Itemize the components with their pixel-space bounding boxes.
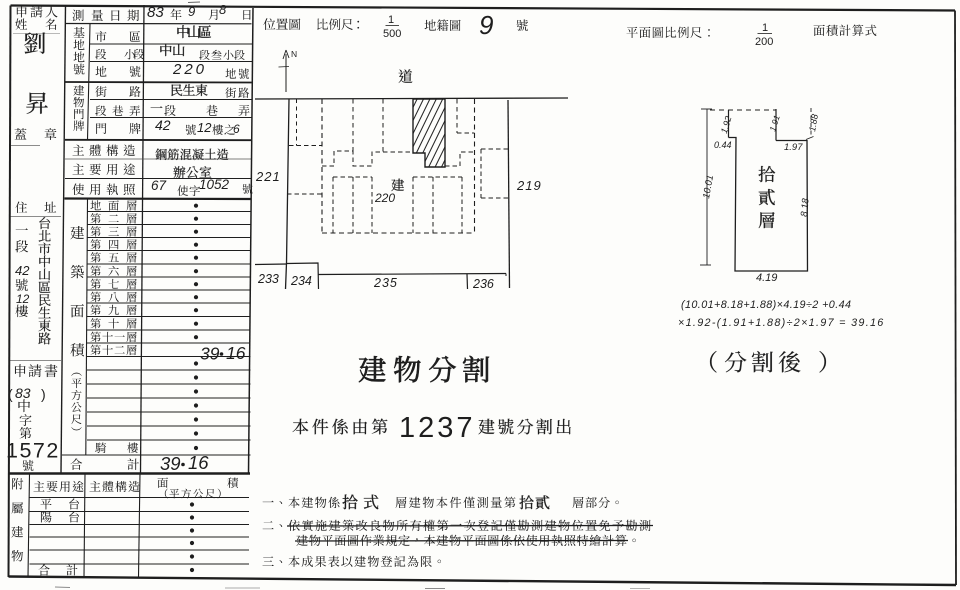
svg-text:10.01: 10.01 [701,174,716,199]
svg-text:8.18: 8.18 [799,197,812,217]
svg-text:42: 42 [155,117,171,133]
svg-text:9: 9 [479,10,493,40]
svg-text:6: 6 [233,122,240,136]
svg-text:220: 220 [172,61,207,78]
svg-text:42: 42 [15,263,30,278]
svg-text:235: 235 [373,276,398,290]
svg-text:1.92: 1.92 [719,115,734,135]
svg-text:220: 220 [374,191,395,205]
svg-text:4.19: 4.19 [756,272,777,284]
svg-text:236: 236 [472,277,494,291]
svg-text:12: 12 [197,120,212,135]
svg-text:1: 1 [388,14,394,26]
svg-text:): ) [41,386,46,402]
svg-text:(10.01+8.18+1.88)×4.19÷2 +0.44: (10.01+8.18+1.88)×4.19÷2 +0.44 [681,299,851,311]
svg-text:221: 221 [255,169,281,184]
svg-text:200: 200 [755,36,773,48]
svg-text:1: 1 [762,22,768,34]
svg-text:1.88: 1.88 [807,113,820,132]
svg-text:219: 219 [516,178,542,193]
svg-text:39: 39 [160,453,181,474]
svg-text:83: 83 [15,385,31,401]
svg-text:N: N [291,49,297,59]
svg-text:1572: 1572 [6,439,60,463]
svg-text:1.97: 1.97 [784,142,803,153]
svg-text:12: 12 [16,292,30,306]
svg-text:233: 233 [257,272,279,286]
svg-text:1.91: 1.91 [767,114,781,133]
svg-text:39: 39 [200,344,220,364]
svg-text:16: 16 [188,452,209,473]
svg-text:0.44: 0.44 [714,140,732,150]
svg-text:500: 500 [383,28,401,40]
svg-text:×1.92-(1.91+1.88)÷2×1.97 = 39.: ×1.92-(1.91+1.88)÷2×1.97 = 39.16 [678,317,885,329]
svg-text:67: 67 [151,178,167,193]
svg-text:234: 234 [290,274,312,288]
svg-text:1237: 1237 [399,412,476,444]
svg-text:1052: 1052 [199,177,230,192]
svg-text:8: 8 [219,2,227,17]
svg-text:16: 16 [226,343,246,363]
